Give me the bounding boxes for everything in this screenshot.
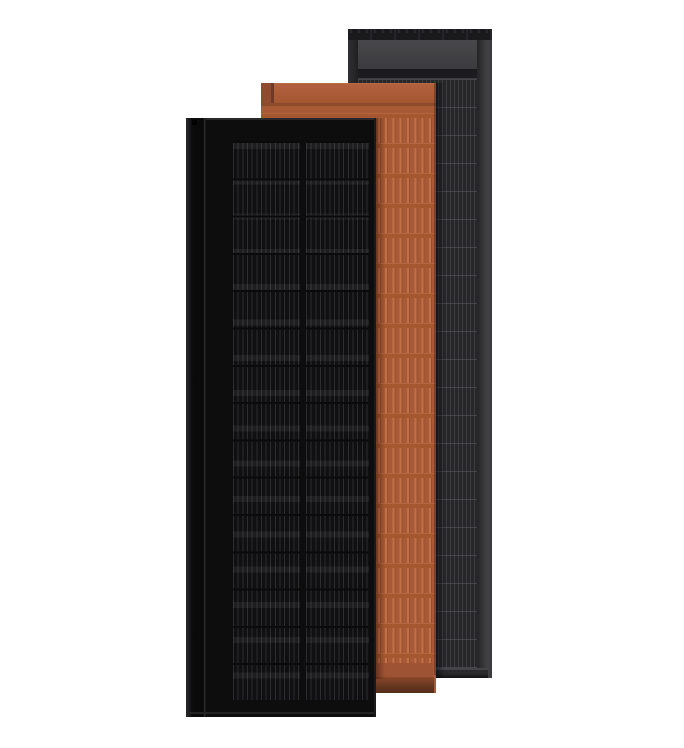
terracotta-sub-header-strip [261,106,436,113]
black-panel-cell-column-right [306,141,369,700]
product-image-stage [0,0,684,748]
terracotta-right-edge [434,83,436,675]
gray-panel-cap-segments [348,29,492,40]
gray-panel-overlap-shadow [436,83,445,678]
gray-panel-header-flashing [352,40,488,71]
black-panel-bottom-lip [188,712,374,714]
black-panel-right-edge [374,118,376,717]
black-panel-cell-column-left [233,141,300,700]
panel-matte-black [186,118,376,717]
gray-panel-divider-band [352,71,488,78]
black-panel-top-edge-highlight [186,118,376,120]
terracotta-header-strip [261,83,436,103]
black-panel-flange-seam [203,118,206,717]
gray-panel-right-frame [477,40,492,678]
black-panel-flange-notch [192,120,197,125]
terracotta-overlap-shadow [376,118,385,679]
black-panel-left-flange [186,118,203,717]
